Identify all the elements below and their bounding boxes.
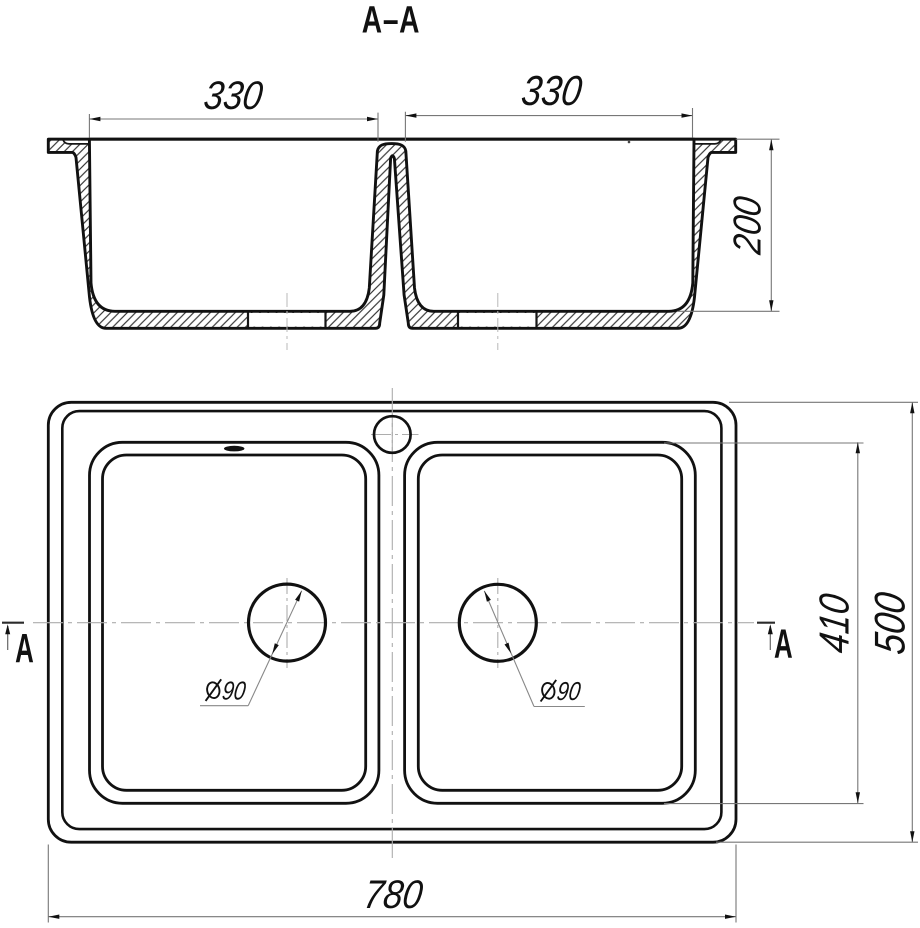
svg-text:A: A [15, 626, 34, 671]
svg-text:90: 90 [555, 678, 582, 707]
svg-text:410: 410 [812, 591, 859, 656]
svg-text:500: 500 [866, 589, 914, 657]
svg-text:200: 200 [726, 193, 770, 257]
svg-text:330: 330 [519, 69, 585, 115]
svg-text:330: 330 [201, 73, 265, 118]
svg-text:A: A [774, 622, 793, 667]
svg-text:780: 780 [361, 872, 425, 917]
svg-text:A–A: A–A [362, 0, 420, 42]
svg-text:90: 90 [220, 677, 247, 706]
